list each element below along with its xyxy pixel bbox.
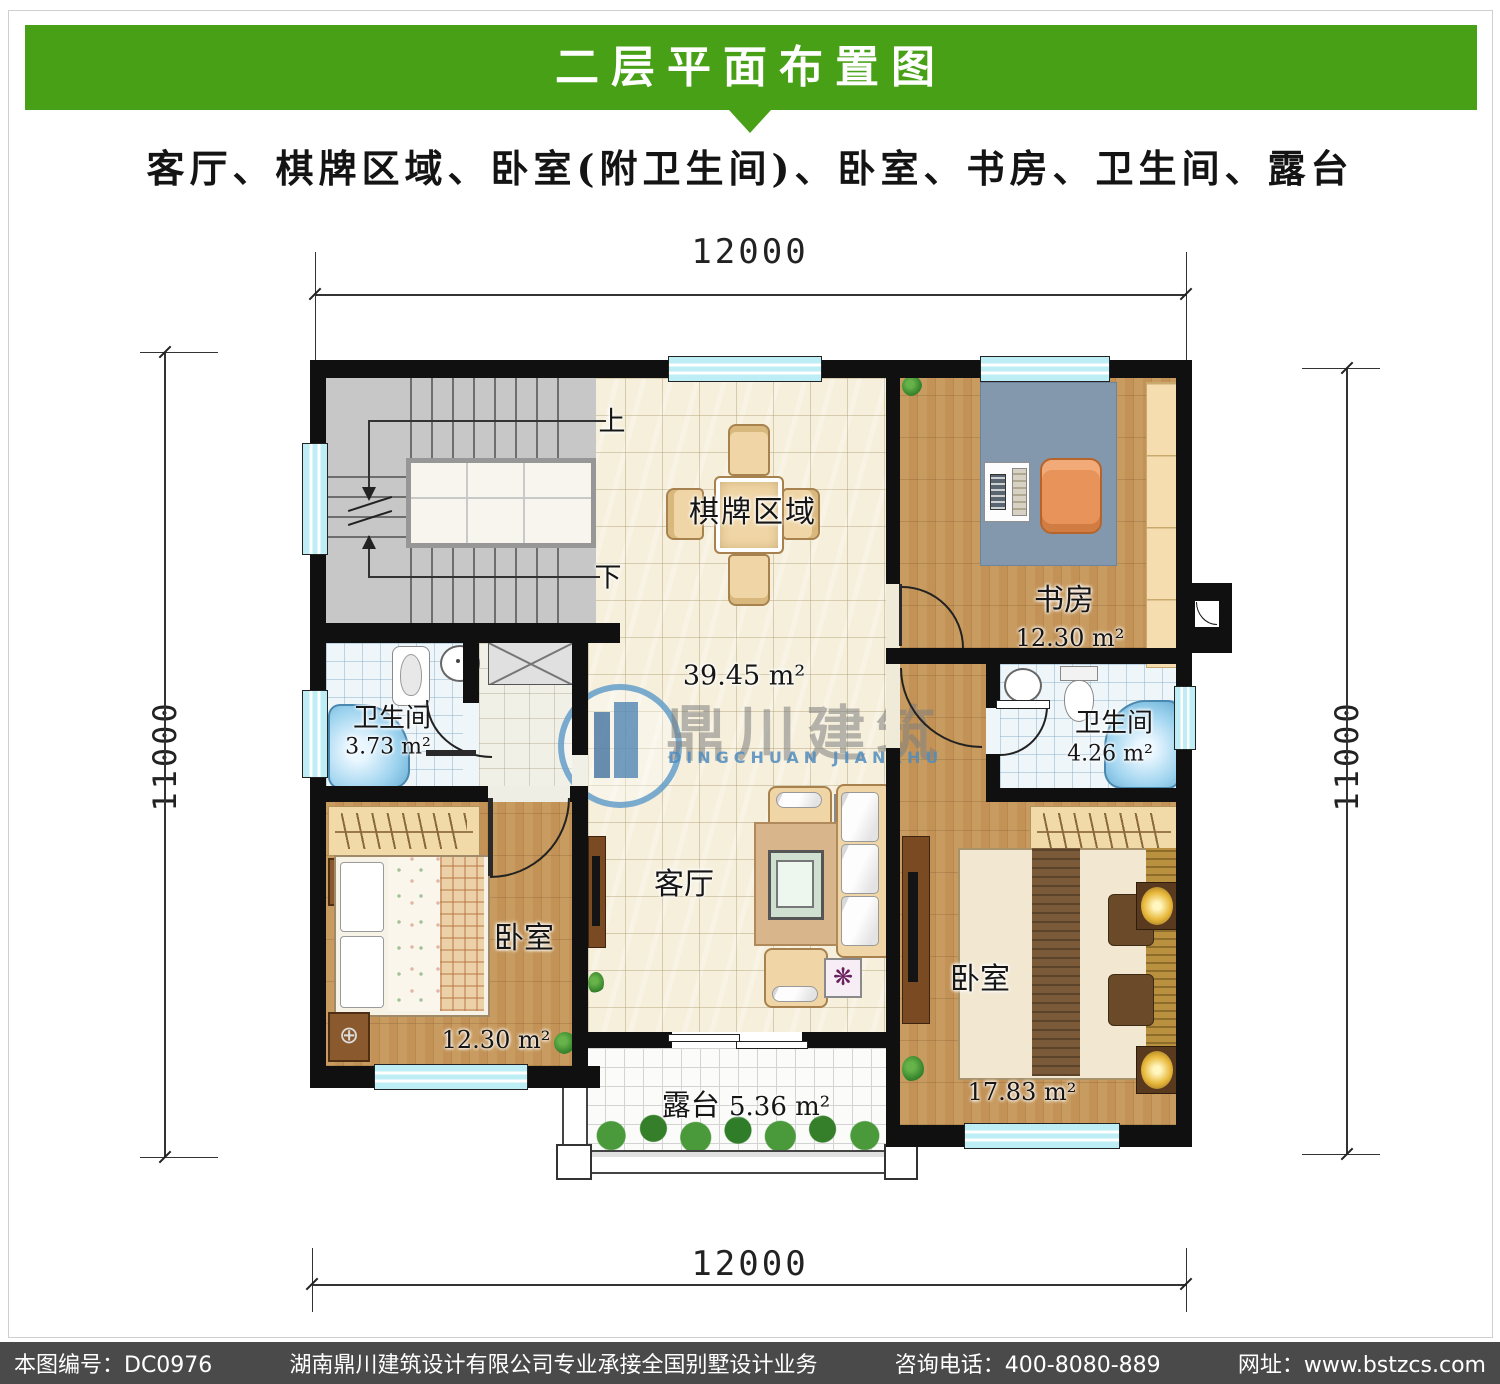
footer-sheet-no: 本图编号：DC0976 [14, 1347, 212, 1379]
room-area-bath-left: 3.73 m² [345, 735, 431, 760]
threshold [886, 664, 900, 748]
dim-right-line [1346, 368, 1348, 1155]
dim-right-ext-t [1302, 368, 1380, 369]
room-label-bath-left: 卫生间 [353, 698, 431, 735]
sink [1004, 668, 1042, 703]
stair-landing [406, 458, 596, 548]
dim-bottom: 12000 [0, 1244, 1500, 1284]
tv-bedroom [908, 872, 918, 982]
bedside-lamp [1136, 882, 1178, 930]
sliding-door-panel [736, 1041, 808, 1049]
terrace-area: 5.36 m² [729, 1092, 830, 1122]
stair-up-label: 上 [599, 400, 626, 439]
wardrobe-bedroom-left [328, 806, 480, 856]
bed-left-pillow [340, 936, 384, 1008]
flower-stand: ❋ [824, 958, 862, 998]
header-pointer [729, 110, 771, 133]
coffee-table-glass [776, 860, 814, 908]
armchair-cushion [772, 986, 818, 1002]
wall-living-east-n [886, 360, 900, 584]
watermark-logo-bar [594, 712, 610, 778]
study-chair [1040, 458, 1102, 534]
bed-left-duvet [388, 857, 440, 1011]
room-label-bedroom-left: 卧室 [494, 913, 554, 957]
window-top-study [980, 356, 1110, 382]
bedroom-right-plant [902, 1056, 924, 1082]
dim-top: 12000 [0, 232, 1500, 272]
window-left-stair [302, 443, 328, 555]
bedside-lamp [1136, 1046, 1178, 1094]
sofa-cushion [841, 844, 879, 894]
dim-left-line [164, 352, 166, 1158]
armchair-cushion [776, 792, 822, 808]
study-wardrobe [1146, 382, 1178, 668]
room-area-bedroom-left: 12.30 m² [442, 1026, 551, 1054]
stair-leader-down [368, 576, 600, 578]
wall-study-south [886, 648, 1190, 664]
room-label-terrace: 露台 5.36 m² [662, 1082, 830, 1124]
sofa-cushion [841, 896, 879, 946]
door-study-leaf [899, 584, 902, 646]
stair-down-label: 下 [595, 556, 622, 595]
bed-left-pillow [340, 862, 384, 932]
sink-drain [456, 659, 460, 663]
threshold [572, 755, 588, 786]
door-bath-right-leaf [996, 700, 1050, 709]
page: { "header": { "title": "二层平面布置图", "subti… [0, 0, 1500, 1384]
window-top-chess [668, 356, 822, 382]
wall-bedl-north-stub [570, 786, 588, 802]
footer-phone: 咨询电话：400-8080-889 [895, 1347, 1161, 1379]
living-plant [588, 972, 604, 994]
stair-leader-up [368, 420, 606, 422]
study-monitor [990, 474, 1006, 510]
bed-right-pillow [1108, 974, 1154, 1026]
study-plant [902, 376, 922, 396]
threshold [986, 708, 1000, 754]
terrace-railing-bottom [586, 1150, 894, 1174]
watermark-logo-bar [614, 702, 638, 778]
wall-bedl-east [572, 802, 588, 1088]
room-area-bath-right: 4.26 m² [1067, 742, 1153, 767]
wall-bathr-south [986, 788, 1190, 802]
page-subtitle: 客厅、棋牌区域、卧室(附卫生间)、卧室、书房、卫生间、露台 [0, 138, 1500, 193]
room-area-bedroom-right: 17.83 m² [968, 1078, 1077, 1106]
wall-bathl-east [463, 643, 479, 703]
wall-living-east-s [886, 748, 900, 1147]
window-right-bath [1174, 686, 1196, 750]
page-title: 二层平面布置图 [25, 25, 1477, 110]
wall-stair-south [310, 623, 620, 643]
footer-website[interactable]: 网址：www.bstzcs.com [1238, 1347, 1486, 1379]
room-label-bedroom-right: 卧室 [950, 954, 1010, 998]
study-books [1012, 468, 1027, 516]
toilet-tank [1060, 666, 1098, 681]
wall-hall-east [572, 643, 588, 755]
bed-left-plaid [440, 857, 484, 1011]
game-chair-north [728, 424, 770, 476]
window-bottom-bedroom-left [374, 1064, 528, 1090]
watermark-en: DINGCHUAN JIANZHU [668, 748, 968, 767]
terrace-post [884, 1144, 918, 1180]
squat-toilet-bowl [400, 654, 422, 696]
stair-arrow-up [362, 535, 376, 549]
door-bedroom-left-leaf [488, 798, 493, 876]
dim-left-ext-b [140, 1157, 218, 1158]
stair-treads-lower [410, 540, 575, 623]
dim-left-ext-t [140, 352, 218, 353]
room-label-chess: 棋牌区域 [689, 487, 817, 531]
game-chair-south [728, 554, 770, 606]
room-label-living: 客厅 [654, 859, 714, 903]
dim-top-line [315, 294, 1187, 296]
sofa-right [836, 784, 892, 958]
bed-right-runner [1032, 848, 1080, 1076]
dim-right-ext-b [1302, 1154, 1380, 1155]
dim-bottom-line [312, 1284, 1186, 1286]
room-label-study: 书房 [1034, 575, 1094, 619]
room-label-bath-right: 卫生间 [1075, 703, 1153, 740]
window-bottom-bedroom-right [964, 1123, 1120, 1149]
stair-treads-upper [410, 378, 575, 460]
sliding-door-panel [668, 1034, 740, 1042]
terrace-name: 露台 [662, 1088, 720, 1122]
window-left-bath [302, 690, 328, 778]
wall-bedl-north [310, 786, 488, 802]
terrace-post [556, 1144, 592, 1180]
wall-right [1176, 360, 1192, 1147]
stair-path-v1 [368, 420, 370, 496]
door-bath-left-leaf [426, 750, 476, 756]
footer-company: 湖南鼎川建筑设计有限公司专业承接全国别墅设计业务 [290, 1347, 818, 1379]
nightstand: ⊕ [328, 1012, 370, 1062]
armchair-south [764, 948, 828, 1008]
stair-arrow-down [362, 487, 376, 501]
tv-living [592, 856, 600, 926]
sofa-cushion [841, 792, 879, 842]
threshold [886, 584, 900, 648]
footer-bar: 本图编号：DC0976 湖南鼎川建筑设计有限公司专业承接全国别墅设计业务 咨询电… [0, 1342, 1500, 1384]
closet-box [488, 641, 574, 685]
